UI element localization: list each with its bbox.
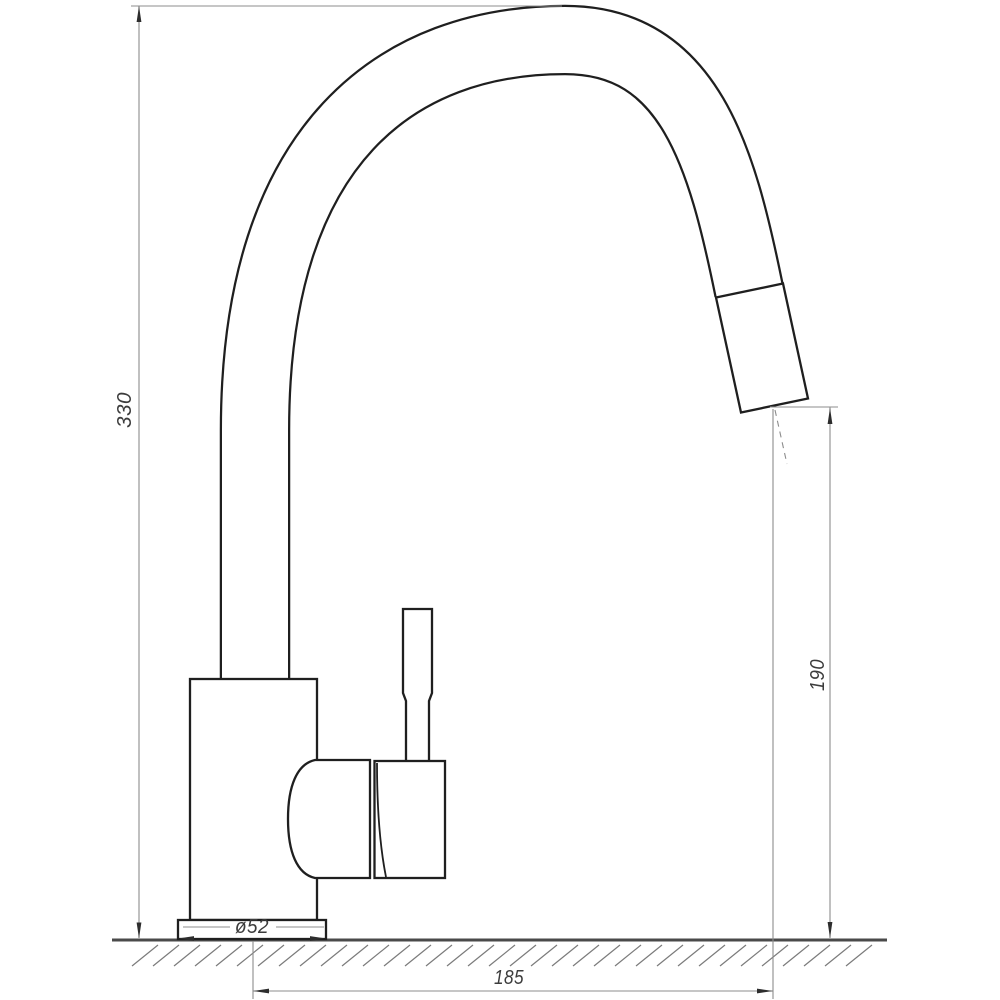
hatch-line (153, 945, 179, 966)
hatch-line (300, 945, 326, 966)
hatch-line (594, 945, 620, 966)
arrow-reach-right (757, 989, 773, 994)
hatch-line (258, 945, 284, 966)
hatch-line (468, 945, 494, 966)
drawing-canvas: 330 190 ø52 185 (0, 0, 1000, 1000)
hatch-line (615, 945, 641, 966)
hatch-line (531, 945, 557, 966)
hatch-line (216, 945, 242, 966)
hatch-line (573, 945, 599, 966)
hatch-line (321, 945, 347, 966)
hatch-line (447, 945, 473, 966)
arrow-overall-top-up (137, 6, 142, 22)
hatch-line (783, 945, 809, 966)
hatch-line (657, 945, 683, 966)
hatch-line (804, 945, 830, 966)
hatch-line (552, 945, 578, 966)
hatch-line (762, 945, 788, 966)
spray-head (716, 284, 808, 413)
countertop (112, 940, 887, 966)
arrow-overall-bottom-down (137, 923, 142, 939)
hatch-line (363, 945, 389, 966)
handle-block (375, 761, 446, 878)
hatch-line (489, 945, 515, 966)
hatch-line (405, 945, 431, 966)
faucet-dimension-drawing: 330 190 ø52 185 (0, 0, 1000, 1000)
arrow-outlet-bottom-down (828, 922, 833, 938)
handle-lever-stick (403, 609, 432, 760)
hatch-line (699, 945, 725, 966)
hatch-line (195, 945, 221, 966)
countertop-hatching (132, 945, 872, 966)
hatch-line (237, 945, 263, 966)
dimension-label-overall-height: 330 (114, 392, 136, 428)
dimension-label-spout-reach: 185 (494, 967, 524, 989)
dimension-label-base-diameter: ø52 (235, 916, 269, 938)
hatch-line (426, 945, 452, 966)
hatch-line (384, 945, 410, 966)
hatch-line (741, 945, 767, 966)
arrow-reach-left (253, 989, 269, 994)
cartridge-cap (288, 760, 370, 878)
hatch-line (342, 945, 368, 966)
hatch-line (510, 945, 536, 966)
hatch-line (825, 945, 851, 966)
hatch-line (720, 945, 746, 966)
faucet-outline (178, 40, 808, 939)
hatch-line (636, 945, 662, 966)
gooseneck-tube-fill (255, 40, 749, 697)
spray-head-axis-line (775, 410, 787, 464)
hatch-line (279, 945, 305, 966)
hatch-line (132, 945, 158, 966)
arrow-outlet-top-up (828, 408, 833, 424)
hatch-line (846, 945, 872, 966)
hatch-line (678, 945, 704, 966)
dimension-label-outlet-height: 190 (807, 659, 829, 691)
hatch-line (174, 945, 200, 966)
